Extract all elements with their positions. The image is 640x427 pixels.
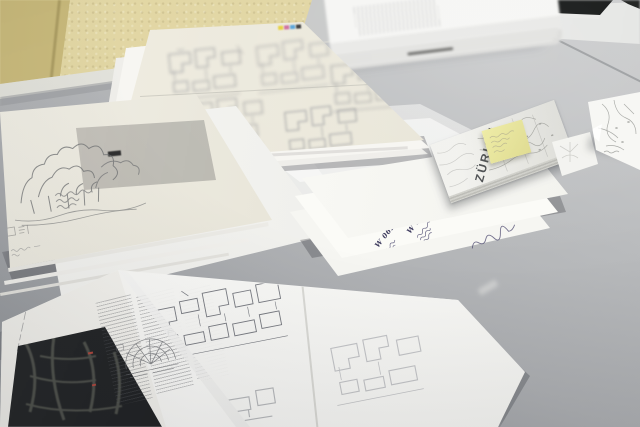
- handwriting-caption: [4, 239, 62, 262]
- color-chip-cyan: [290, 25, 295, 29]
- color-chip-black: [296, 24, 301, 28]
- tracing-top-marks: [245, 261, 286, 278]
- small-booklet-sketch: [556, 138, 592, 170]
- pencil-plan-faint-right: [316, 308, 442, 423]
- photo-scene: W 06L W 06L ZÜRICH: [0, 0, 640, 427]
- stamp-marks: [5, 222, 37, 241]
- sticky-note-writing: [487, 126, 525, 155]
- booklet-stack: [321, 0, 564, 72]
- table-scuff: [478, 279, 499, 295]
- color-chip-yellow: [278, 26, 283, 30]
- color-chip-magenta: [284, 25, 289, 29]
- booklet-print-block: [353, 0, 440, 37]
- right-map-sketch: [596, 98, 640, 160]
- tree-sketch: [1, 117, 189, 230]
